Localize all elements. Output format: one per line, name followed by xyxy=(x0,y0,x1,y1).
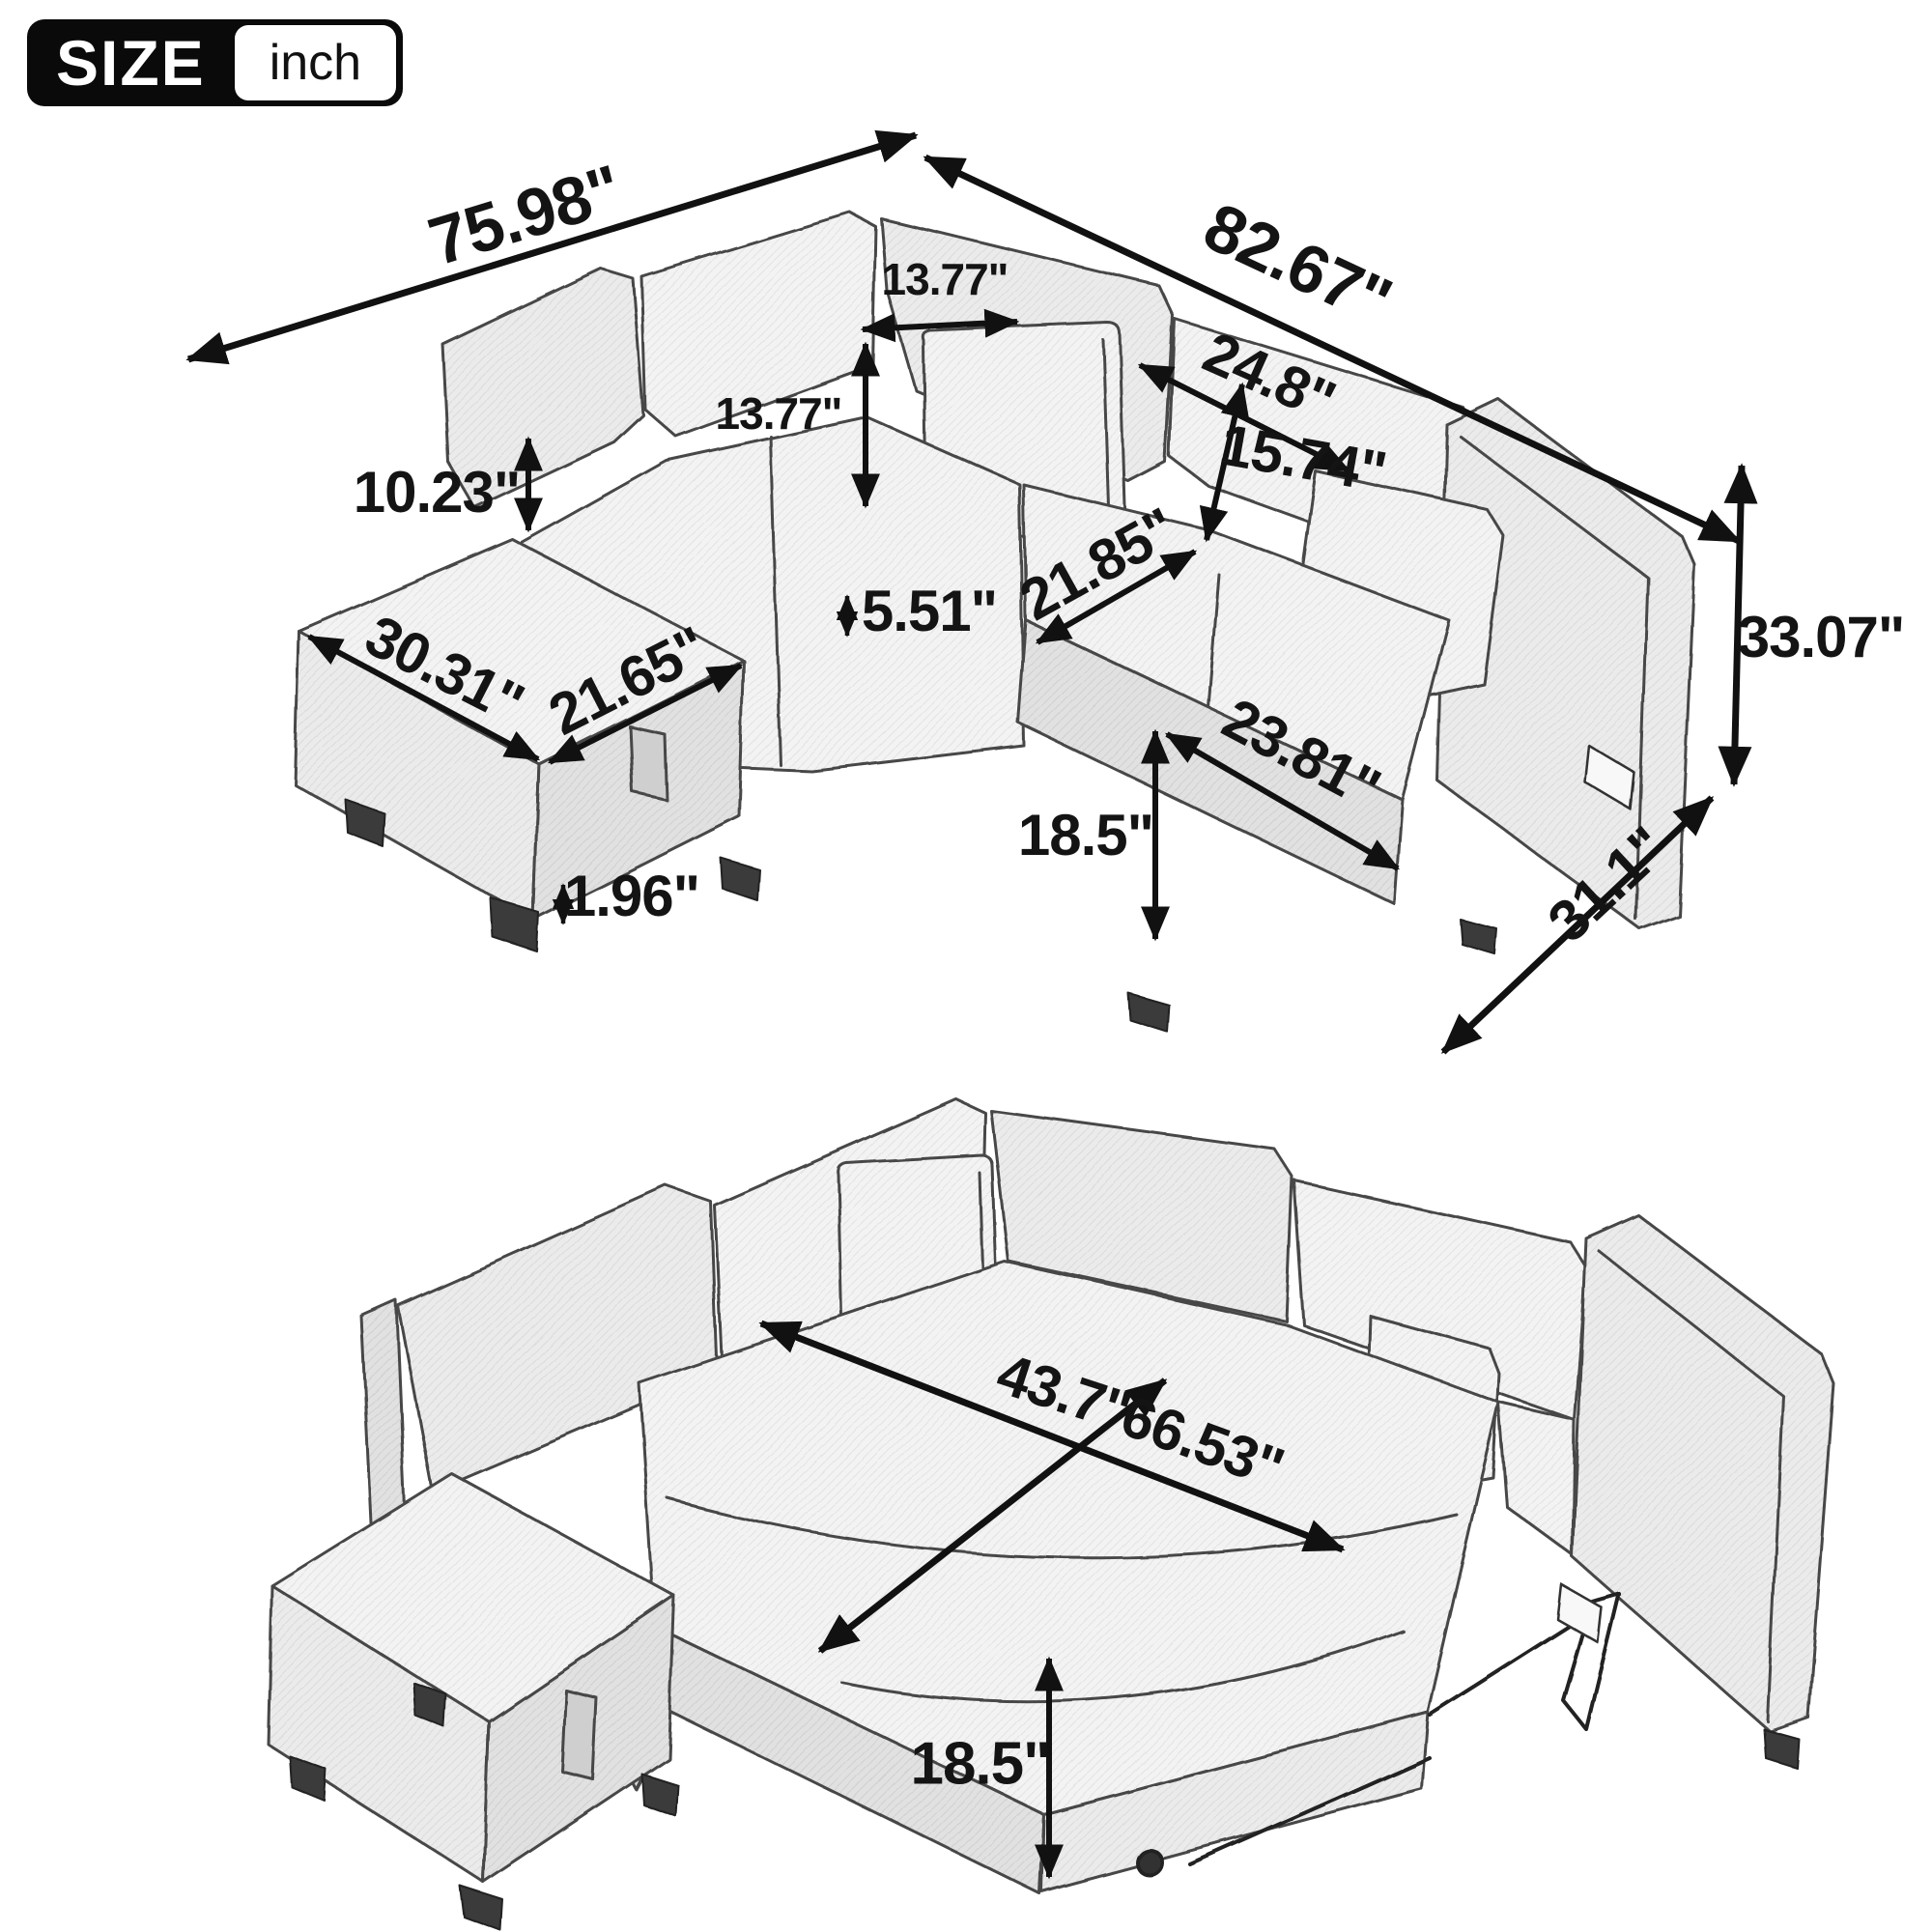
dim-label-backrest-above-ottoman: 10.23" xyxy=(354,460,521,525)
dim-label-corner-pillow-height: 13.77" xyxy=(716,388,842,439)
right-seat-wedge xyxy=(1499,1403,1575,1555)
product-dimension-sheet: SIZE inch xyxy=(0,0,1932,1932)
dim-label-overall-width-right: 82.67" xyxy=(1193,188,1402,339)
bed-usb-charging-panel xyxy=(1557,1584,1602,1642)
dim-label-overall-width-left: 75.98" xyxy=(420,151,629,280)
dim-label-corner-pillow-width: 13.77" xyxy=(882,254,1009,304)
dim-label-bed-height: 18.5" xyxy=(910,1730,1050,1797)
dim-label-overall-height: 33.07" xyxy=(1738,605,1905,669)
dim-label-seat-height: 18.5" xyxy=(1018,803,1153,867)
dim-label-leg-height: 1.96" xyxy=(564,864,699,928)
dim-label-seat-cushion-thickness: 5.51" xyxy=(862,579,997,643)
bed-ottoman-strap xyxy=(562,1690,597,1779)
dimension-diagram-canvas: 75.98" 82.67" 13.77" 13.77" 24.8" 15.74"… xyxy=(0,0,1932,1932)
bed-right-arm-panel xyxy=(1573,1215,1833,1731)
ottoman-strap-handle xyxy=(630,726,667,800)
